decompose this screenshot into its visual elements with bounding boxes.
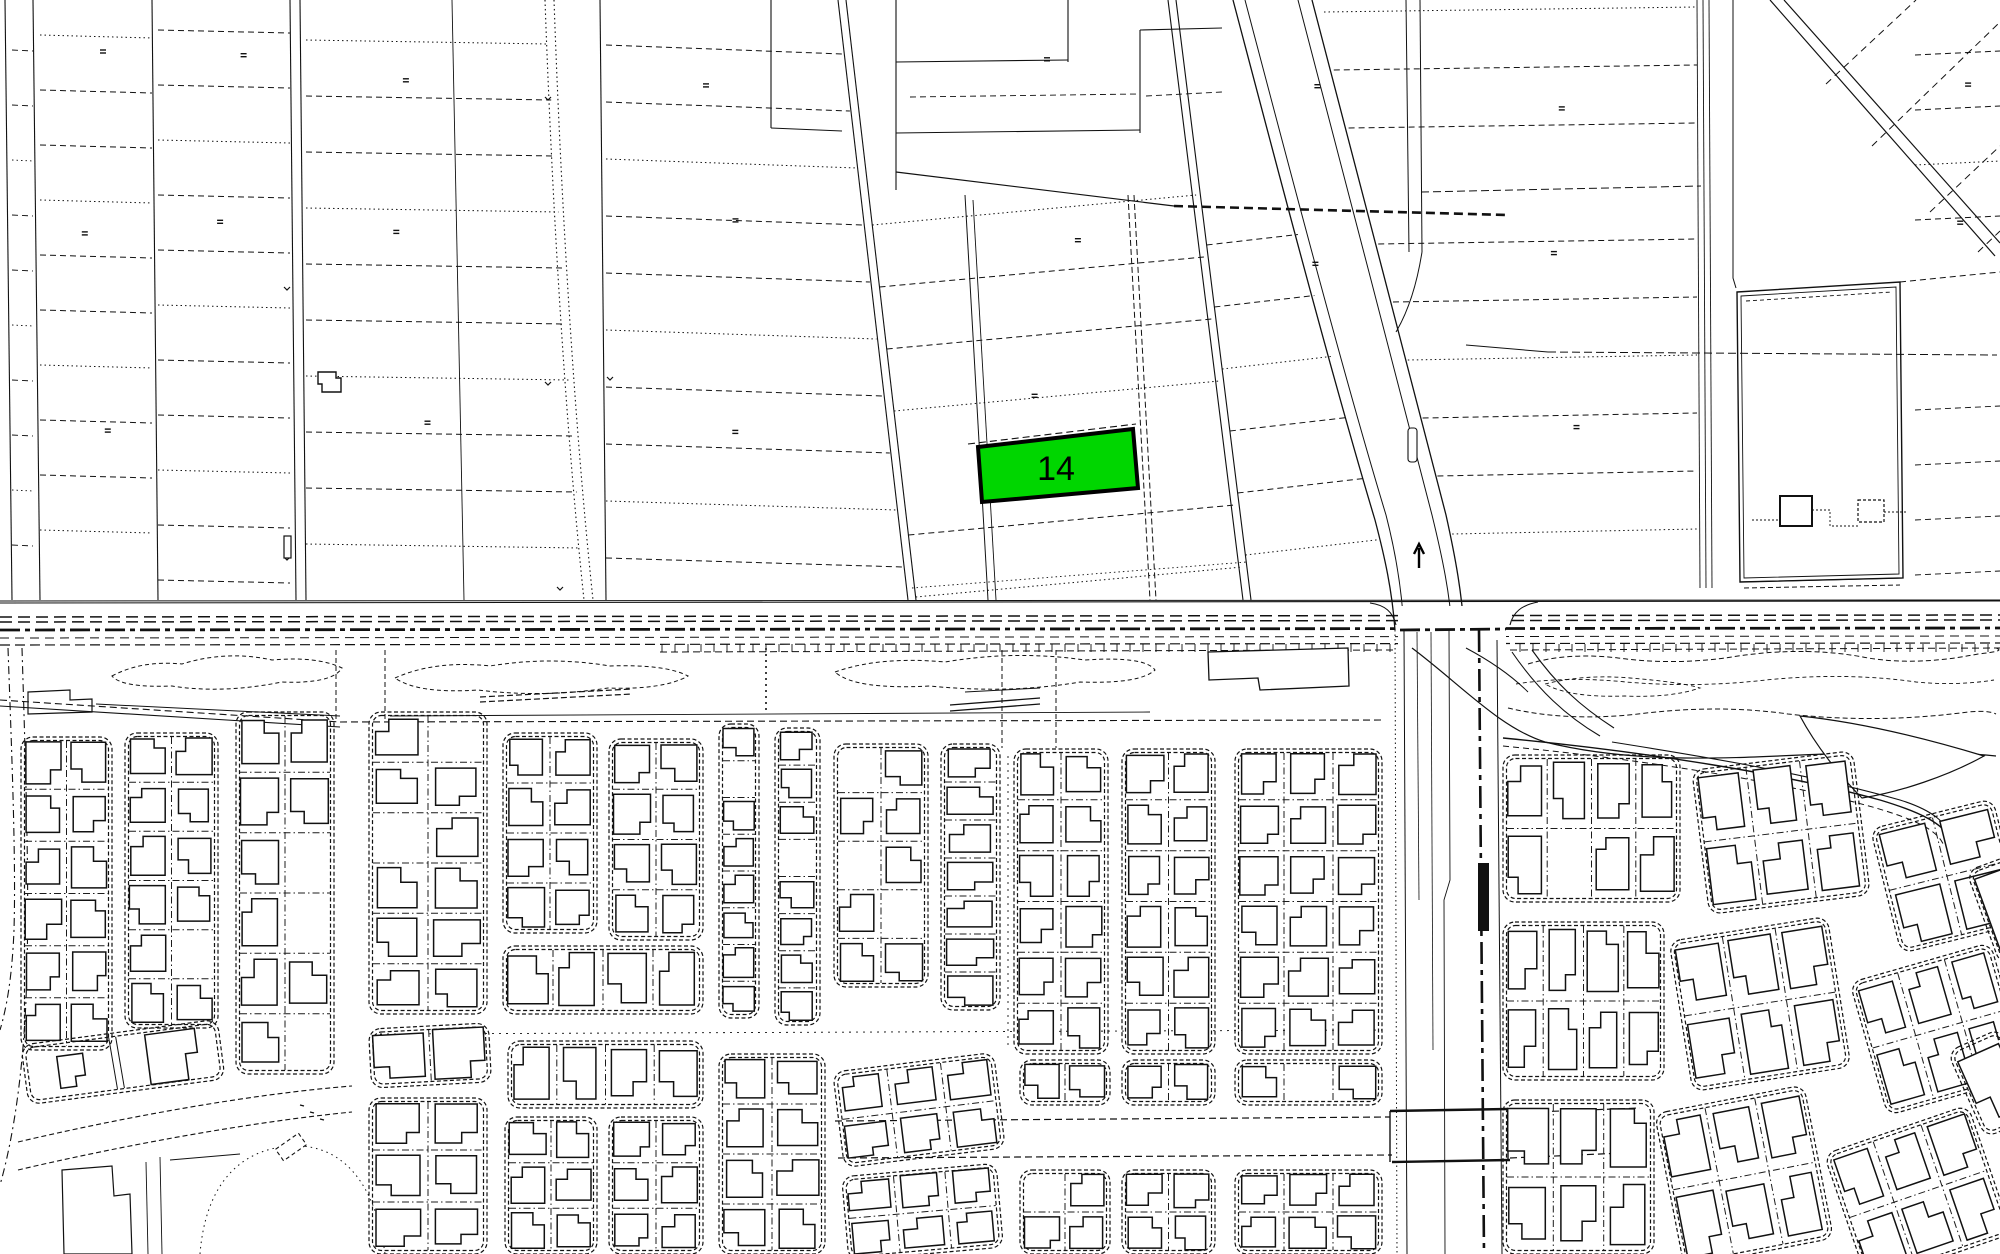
- svg-text:14: 14: [1037, 450, 1075, 488]
